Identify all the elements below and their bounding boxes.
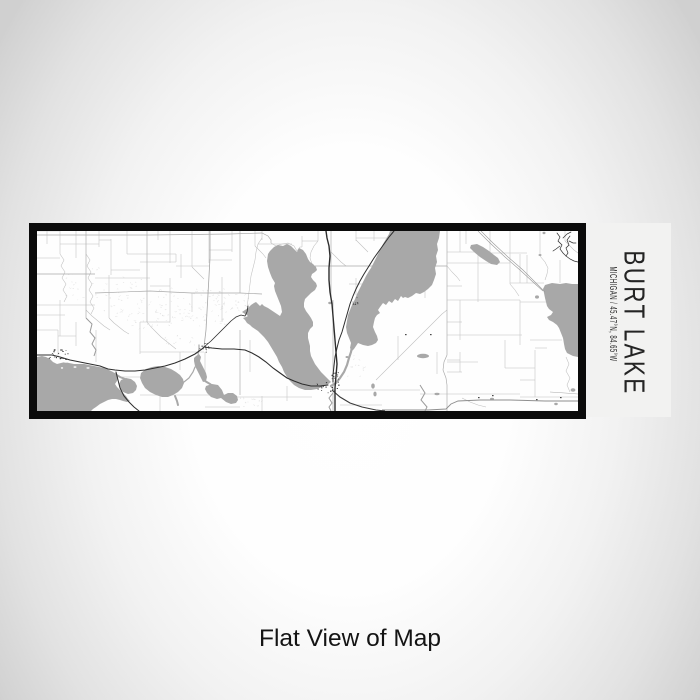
svg-text:BURT LAKE: BURT LAKE xyxy=(618,250,649,395)
svg-text:MICHIGAN / 45.47°N, 84.65°W: MICHIGAN / 45.47°N, 84.65°W xyxy=(608,266,620,361)
